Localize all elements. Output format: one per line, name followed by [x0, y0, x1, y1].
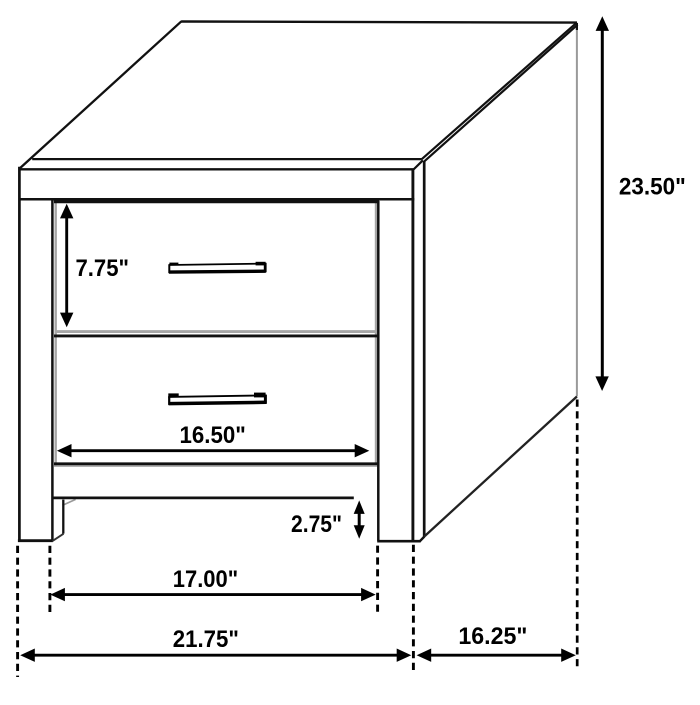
svg-text:7.75": 7.75" [76, 255, 130, 282]
svg-text:16.25": 16.25" [458, 623, 527, 650]
svg-text:16.50": 16.50" [180, 422, 246, 449]
svg-text:17.00": 17.00" [173, 566, 238, 593]
svg-text:21.75": 21.75" [173, 626, 239, 653]
svg-text:2.75": 2.75" [291, 511, 342, 538]
svg-text:23.50": 23.50" [619, 174, 686, 201]
